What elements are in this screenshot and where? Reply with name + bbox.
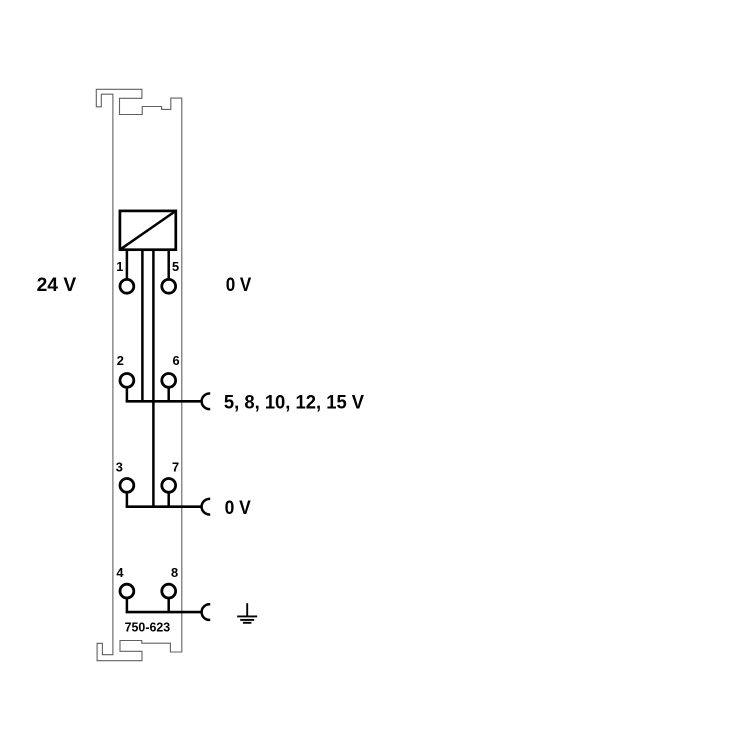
svg-text:6: 6	[172, 353, 179, 368]
svg-text:7: 7	[172, 460, 179, 475]
svg-text:8: 8	[171, 565, 178, 580]
svg-text:0 V: 0 V	[225, 497, 251, 519]
svg-text:750-623: 750-623	[125, 621, 171, 635]
svg-text:1: 1	[116, 259, 123, 274]
svg-text:0 V: 0 V	[226, 274, 252, 296]
svg-text:2: 2	[117, 353, 124, 368]
svg-text:4: 4	[116, 565, 124, 580]
svg-text:3: 3	[116, 460, 123, 475]
svg-text:5: 5	[172, 259, 179, 274]
svg-text:5, 8, 10, 12, 15 V: 5, 8, 10, 12, 15 V	[224, 391, 364, 413]
svg-text:24 V: 24 V	[37, 274, 77, 296]
